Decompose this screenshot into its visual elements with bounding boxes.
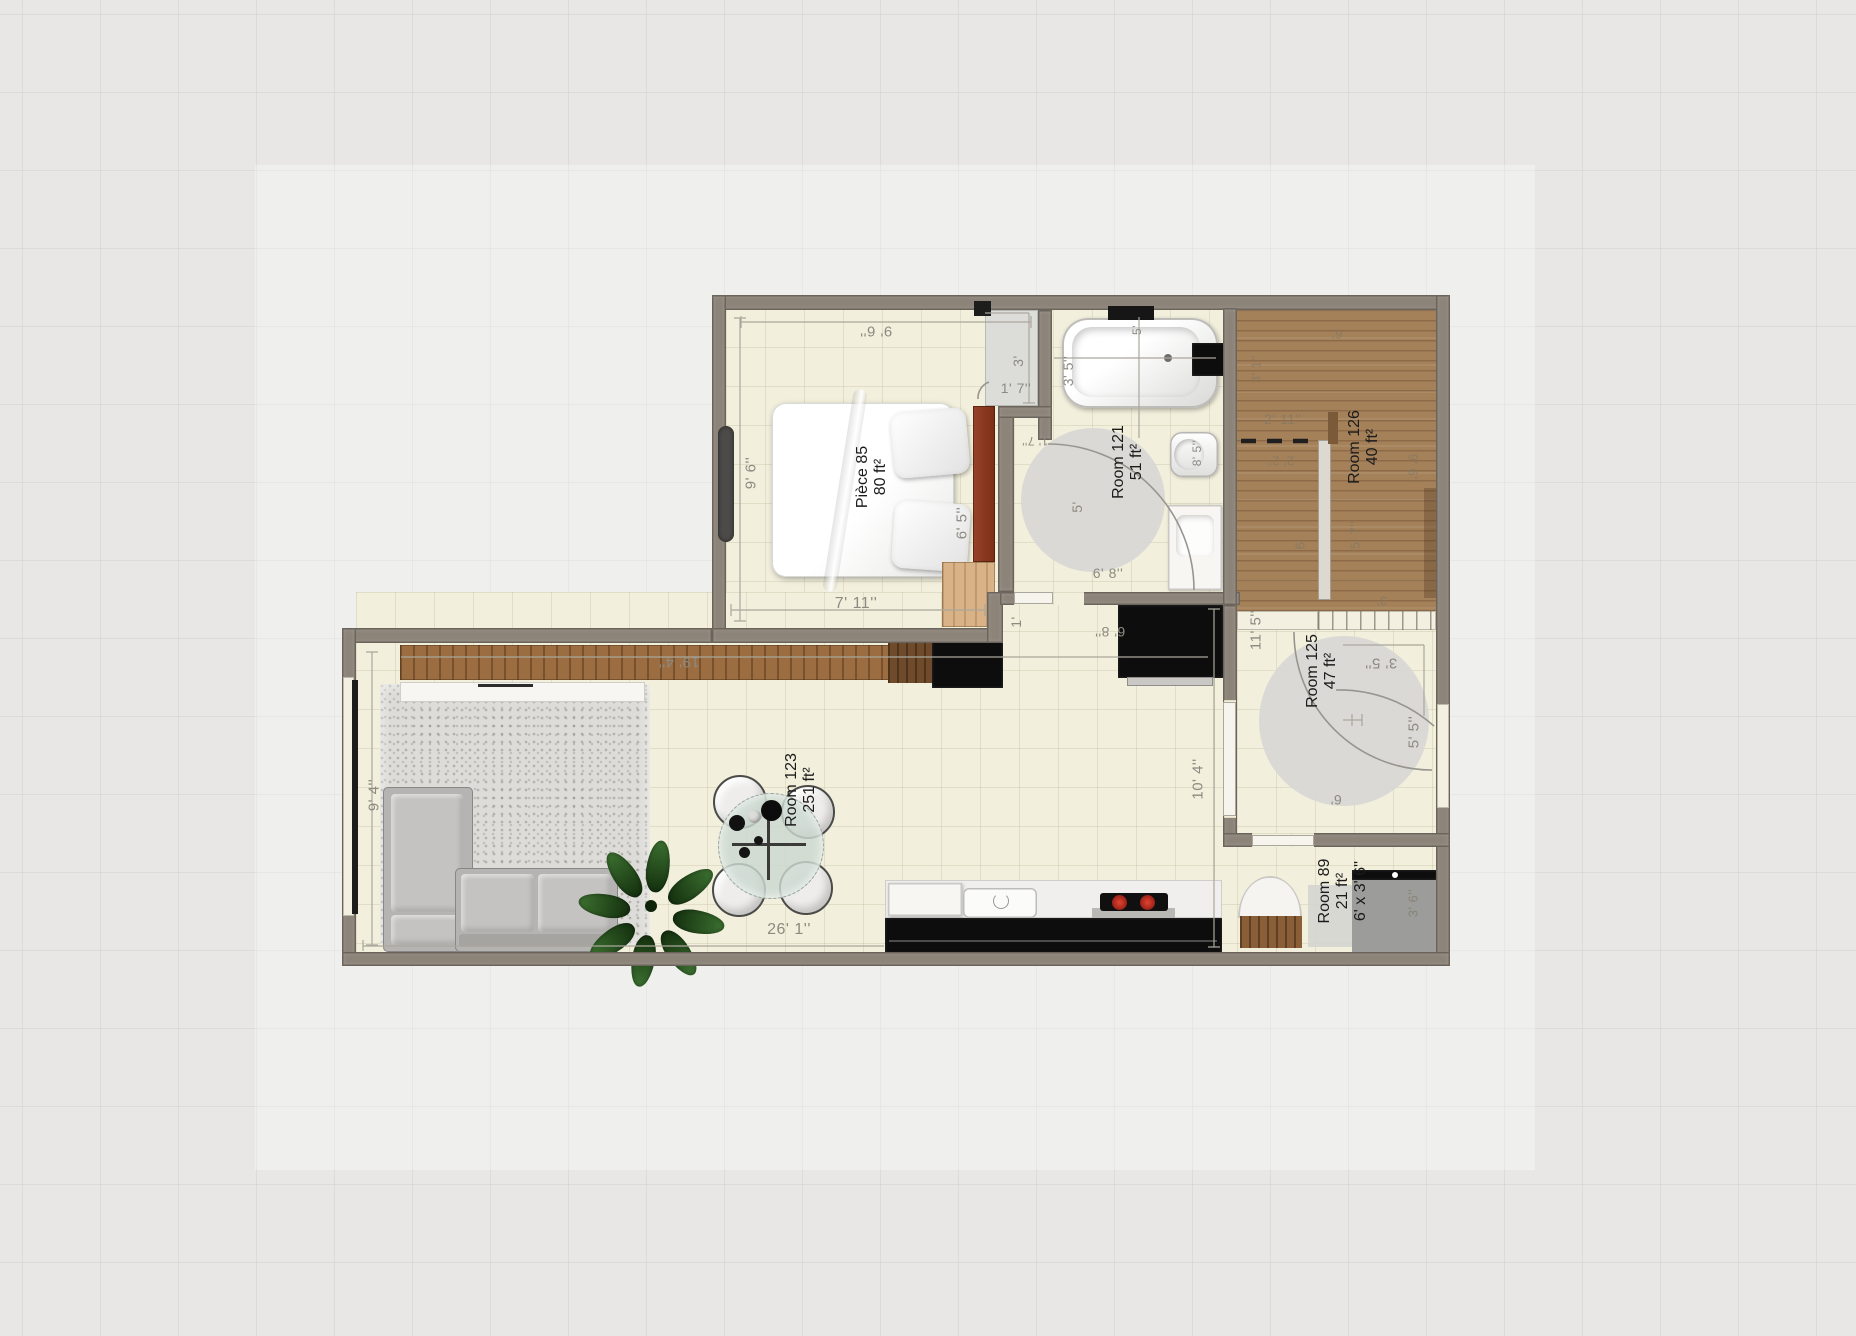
room-area: 40 ft² <box>1364 410 1382 484</box>
room-name: Room 123 <box>783 753 801 827</box>
vanity-basin <box>1176 515 1214 557</box>
dimension-label: 1' 7'' <box>1001 380 1031 396</box>
bedroom-window[interactable] <box>718 426 734 542</box>
burner <box>1112 895 1127 910</box>
plant-center <box>645 900 657 912</box>
stairs-bottom-step <box>1318 611 1436 630</box>
wall-bottom[interactable] <box>342 952 1450 966</box>
hall-window-sill <box>1437 704 1449 808</box>
wall-bath-stairs[interactable] <box>1223 308 1237 605</box>
wc-sink-cabinet[interactable] <box>1240 916 1302 948</box>
wc-door[interactable] <box>1252 835 1314 846</box>
burner <box>1140 895 1155 910</box>
wall-right[interactable] <box>1436 295 1450 966</box>
dimension-label: 2' 11'' <box>1264 411 1302 427</box>
dimension-label: 6' <box>1330 792 1341 808</box>
dimension-label: 8' 5'' <box>1190 440 1204 467</box>
hall-door[interactable] <box>1223 702 1236 816</box>
dimension-label: 6' 8'' <box>1095 624 1125 640</box>
tv-stand <box>1127 677 1213 686</box>
dimension-label: 3' <box>1377 594 1388 609</box>
sideboard-black[interactable] <box>932 640 1003 688</box>
stove[interactable] <box>1100 893 1168 911</box>
dimension-label: 1' 7'' <box>1022 434 1049 448</box>
table-plate <box>761 800 782 821</box>
kitchen-cabinet-front[interactable] <box>885 918 1222 953</box>
wall-bedroom-bottom[interactable] <box>712 628 1003 643</box>
bathroom-vanity[interactable] <box>1168 505 1222 590</box>
room-area: 47 ft² <box>1322 634 1340 708</box>
wall-living-top[interactable] <box>342 628 712 643</box>
cabinet-groove <box>889 940 1217 942</box>
dimension-label: 6' <box>1332 327 1343 342</box>
dimension-label: 10' 4'' <box>1190 758 1207 799</box>
room-label-living: Room 123 251 ft² <box>783 753 819 827</box>
room-label-hall: Room 125 47 ft² <box>1304 634 1340 708</box>
sink-faucet <box>993 893 1009 909</box>
dimension-label: 19' 4'' <box>658 654 699 671</box>
dimension-label: 3' <box>1010 355 1026 366</box>
living-window[interactable] <box>352 680 358 914</box>
bathtub-drain <box>1164 354 1172 362</box>
room-name: Room 125 <box>1304 634 1322 708</box>
dimension-label: 5' <box>1069 501 1085 512</box>
dimension-label: 2' 2'' <box>1266 454 1295 469</box>
dimension-label: 9' 6'' <box>1406 454 1421 483</box>
dimension-label: 9' 4'' <box>366 779 383 811</box>
room-area: 21 ft² <box>1334 859 1352 924</box>
dimension-label: 3' 6'' <box>1406 889 1421 918</box>
hall-clearance-circle <box>1259 636 1429 806</box>
dimension-label: 26' 1'' <box>767 921 811 939</box>
sofa-front-edge <box>459 934 614 947</box>
room-name: Room 126 <box>1346 410 1364 484</box>
dimension-label: 3' 5'' <box>1060 356 1076 386</box>
stair-newel <box>1328 412 1338 444</box>
floorplan-canvas: Pièce 85 80 ft² Room 121 51 ft² Room 126… <box>0 0 1856 1336</box>
dimension-label: 9' 6'' <box>860 323 892 340</box>
wc-appliance-led <box>1392 872 1398 878</box>
dimension-label: 7' 11'' <box>835 595 878 613</box>
sofa-cushion <box>391 794 463 912</box>
stair-landing-strip <box>1318 440 1331 600</box>
sideboard-walnut[interactable] <box>888 642 932 683</box>
dimension-label: 5' 5'' <box>1406 716 1423 748</box>
table-plate <box>729 815 745 831</box>
table-plate <box>754 836 763 845</box>
potted-plant[interactable] <box>606 858 696 958</box>
stairs-edge-shade <box>1424 488 1436 598</box>
wall-nook-bottom[interactable] <box>998 406 1052 418</box>
dimension-label: 3' 1'' <box>1249 355 1264 384</box>
bed-pillow <box>889 407 970 479</box>
bathroom-door[interactable] <box>1014 592 1053 604</box>
wall-headboard-stub[interactable] <box>998 406 1014 592</box>
sofa-cushion <box>391 915 463 945</box>
room-name: Room 89 <box>1316 859 1334 924</box>
room-area: 80 ft² <box>872 446 890 508</box>
room-label-bedroom: Pièce 85 80 ft² <box>854 446 890 508</box>
kitchen-appliance[interactable] <box>888 883 962 916</box>
dimension-label: 3' 5'' <box>1365 655 1397 672</box>
dimension-label: 6' 8'' <box>1093 565 1123 581</box>
table-plate <box>739 847 750 858</box>
room-area: 51 ft² <box>1128 425 1146 499</box>
dimension-label: 11' 5'' <box>1248 610 1265 650</box>
dimension-label: 6' 5'' <box>954 507 971 539</box>
sofa-cushion <box>461 874 534 932</box>
table-deco-ball <box>748 810 761 823</box>
room-size: 6' x 3' 6'' <box>1352 859 1370 924</box>
room-area: 251 ft² <box>801 753 819 827</box>
shower-column[interactable] <box>1192 343 1226 376</box>
bath-window[interactable] <box>1108 306 1154 320</box>
dimension-label: 5' 7'' <box>1348 521 1363 550</box>
room-label-stairs: Room 126 40 ft² <box>1346 410 1382 484</box>
shelf-handle <box>478 684 533 687</box>
wall-bath-left[interactable] <box>1038 310 1052 440</box>
tv-unit[interactable] <box>1118 605 1223 678</box>
wall-top[interactable] <box>712 295 1450 310</box>
room-label-bathroom: Room 121 51 ft² <box>1110 425 1146 499</box>
room-name: Room 121 <box>1110 425 1128 499</box>
bathtub-basin <box>1072 327 1200 397</box>
wall-shelf[interactable] <box>400 645 890 680</box>
bedroom-wall-vent <box>974 301 991 316</box>
room-label-wc: Room 89 21 ft² 6' x 3' 6'' <box>1316 859 1370 924</box>
dimension-label: 6' <box>1293 539 1308 550</box>
room-name: Pièce 85 <box>854 446 872 508</box>
dimension-label: 9' 6'' <box>743 457 760 489</box>
bed-headboard-panel[interactable] <box>973 406 995 562</box>
dimension-label: 1' <box>1008 616 1024 627</box>
dimension-label: 5' <box>1130 325 1144 335</box>
